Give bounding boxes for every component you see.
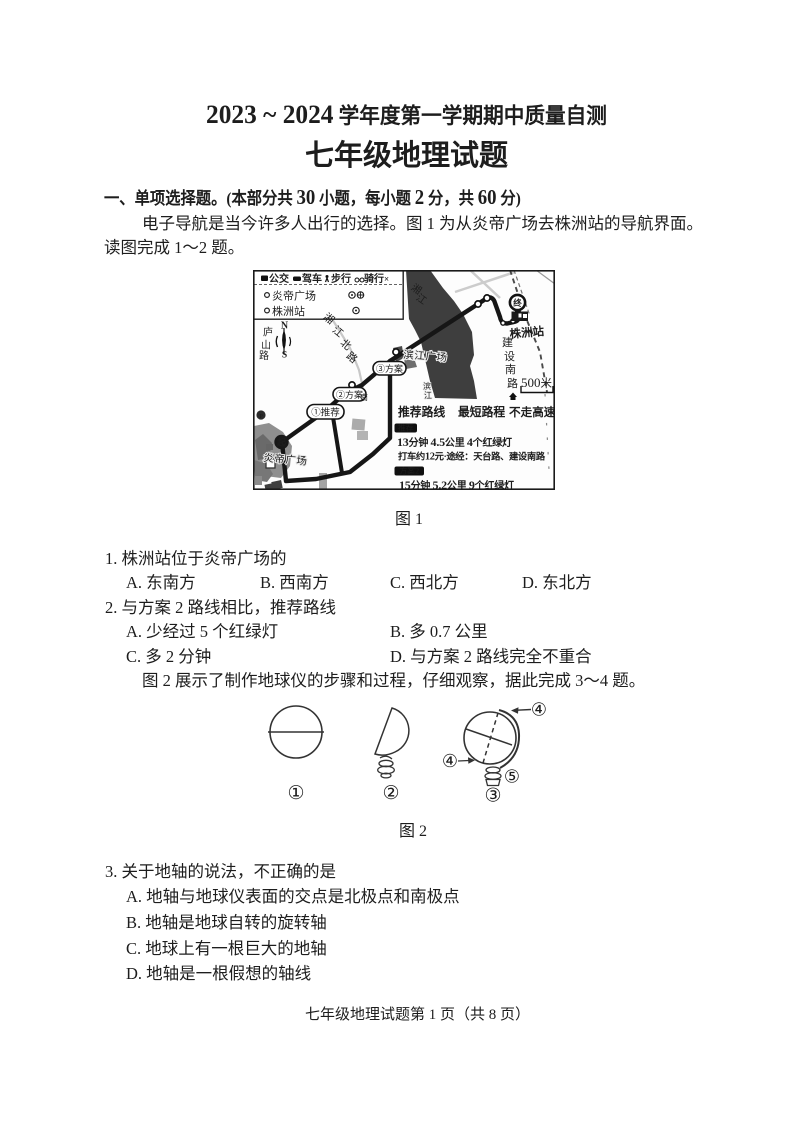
svg-text:山: 山 [261, 340, 271, 352]
svg-text:庐: 庐 [263, 326, 273, 339]
svg-text:建: 建 [502, 335, 513, 349]
svg-text:江: 江 [424, 391, 432, 400]
svg-text:13分钟 4.5公里 4个红绿灯: 13分钟 4.5公里 4个红绿灯 [397, 435, 512, 449]
svg-text:②: ② [382, 783, 399, 804]
svg-text:③: ③ [484, 786, 501, 807]
svg-text:终: 终 [512, 298, 522, 308]
svg-text:滨: 滨 [423, 381, 431, 391]
svg-text:③方案: ③方案 [376, 363, 403, 374]
svg-text:打车约12元·途经：天台路、建设南路: 打车约12元·途经：天台路、建设南路 [398, 451, 546, 463]
svg-text:南: 南 [505, 363, 516, 376]
svg-text:起: 起 [276, 437, 287, 448]
svg-text:S: S [282, 351, 287, 361]
svg-text:P: P [259, 413, 263, 420]
svg-text:推荐路线: 推荐路线 [398, 405, 445, 419]
svg-text:⑤: ⑤ [504, 767, 520, 787]
svg-text:④: ④ [442, 751, 458, 771]
svg-text:路: 路 [259, 349, 269, 362]
svg-text:推荐: 推荐 [398, 423, 414, 433]
svg-text:①推荐: ①推荐 [311, 407, 340, 419]
svg-text:路: 路 [507, 377, 518, 390]
svg-text:500米: 500米 [521, 375, 553, 390]
svg-text:公交: 公交 [269, 272, 289, 285]
svg-text:①: ① [287, 783, 304, 804]
svg-text:不走高速: 不走高速 [509, 405, 555, 419]
svg-text:方案2: 方案2 [399, 466, 419, 476]
svg-text:南: 南 [360, 392, 368, 402]
svg-text:骑行×: 骑行× [364, 272, 389, 285]
svg-text:炎帝广场: 炎帝广场 [272, 289, 316, 303]
svg-text:驾车: 驾车 [301, 272, 322, 285]
svg-text:设: 设 [504, 350, 515, 363]
svg-text:株洲站: 株洲站 [272, 304, 305, 318]
svg-text:④: ④ [531, 700, 547, 720]
svg-text:N: N [281, 321, 289, 332]
svg-text:步行: 步行 [331, 272, 351, 285]
svg-text:最短路程: 最短路程 [458, 405, 505, 419]
svg-text:②方案: ②方案 [336, 389, 363, 400]
